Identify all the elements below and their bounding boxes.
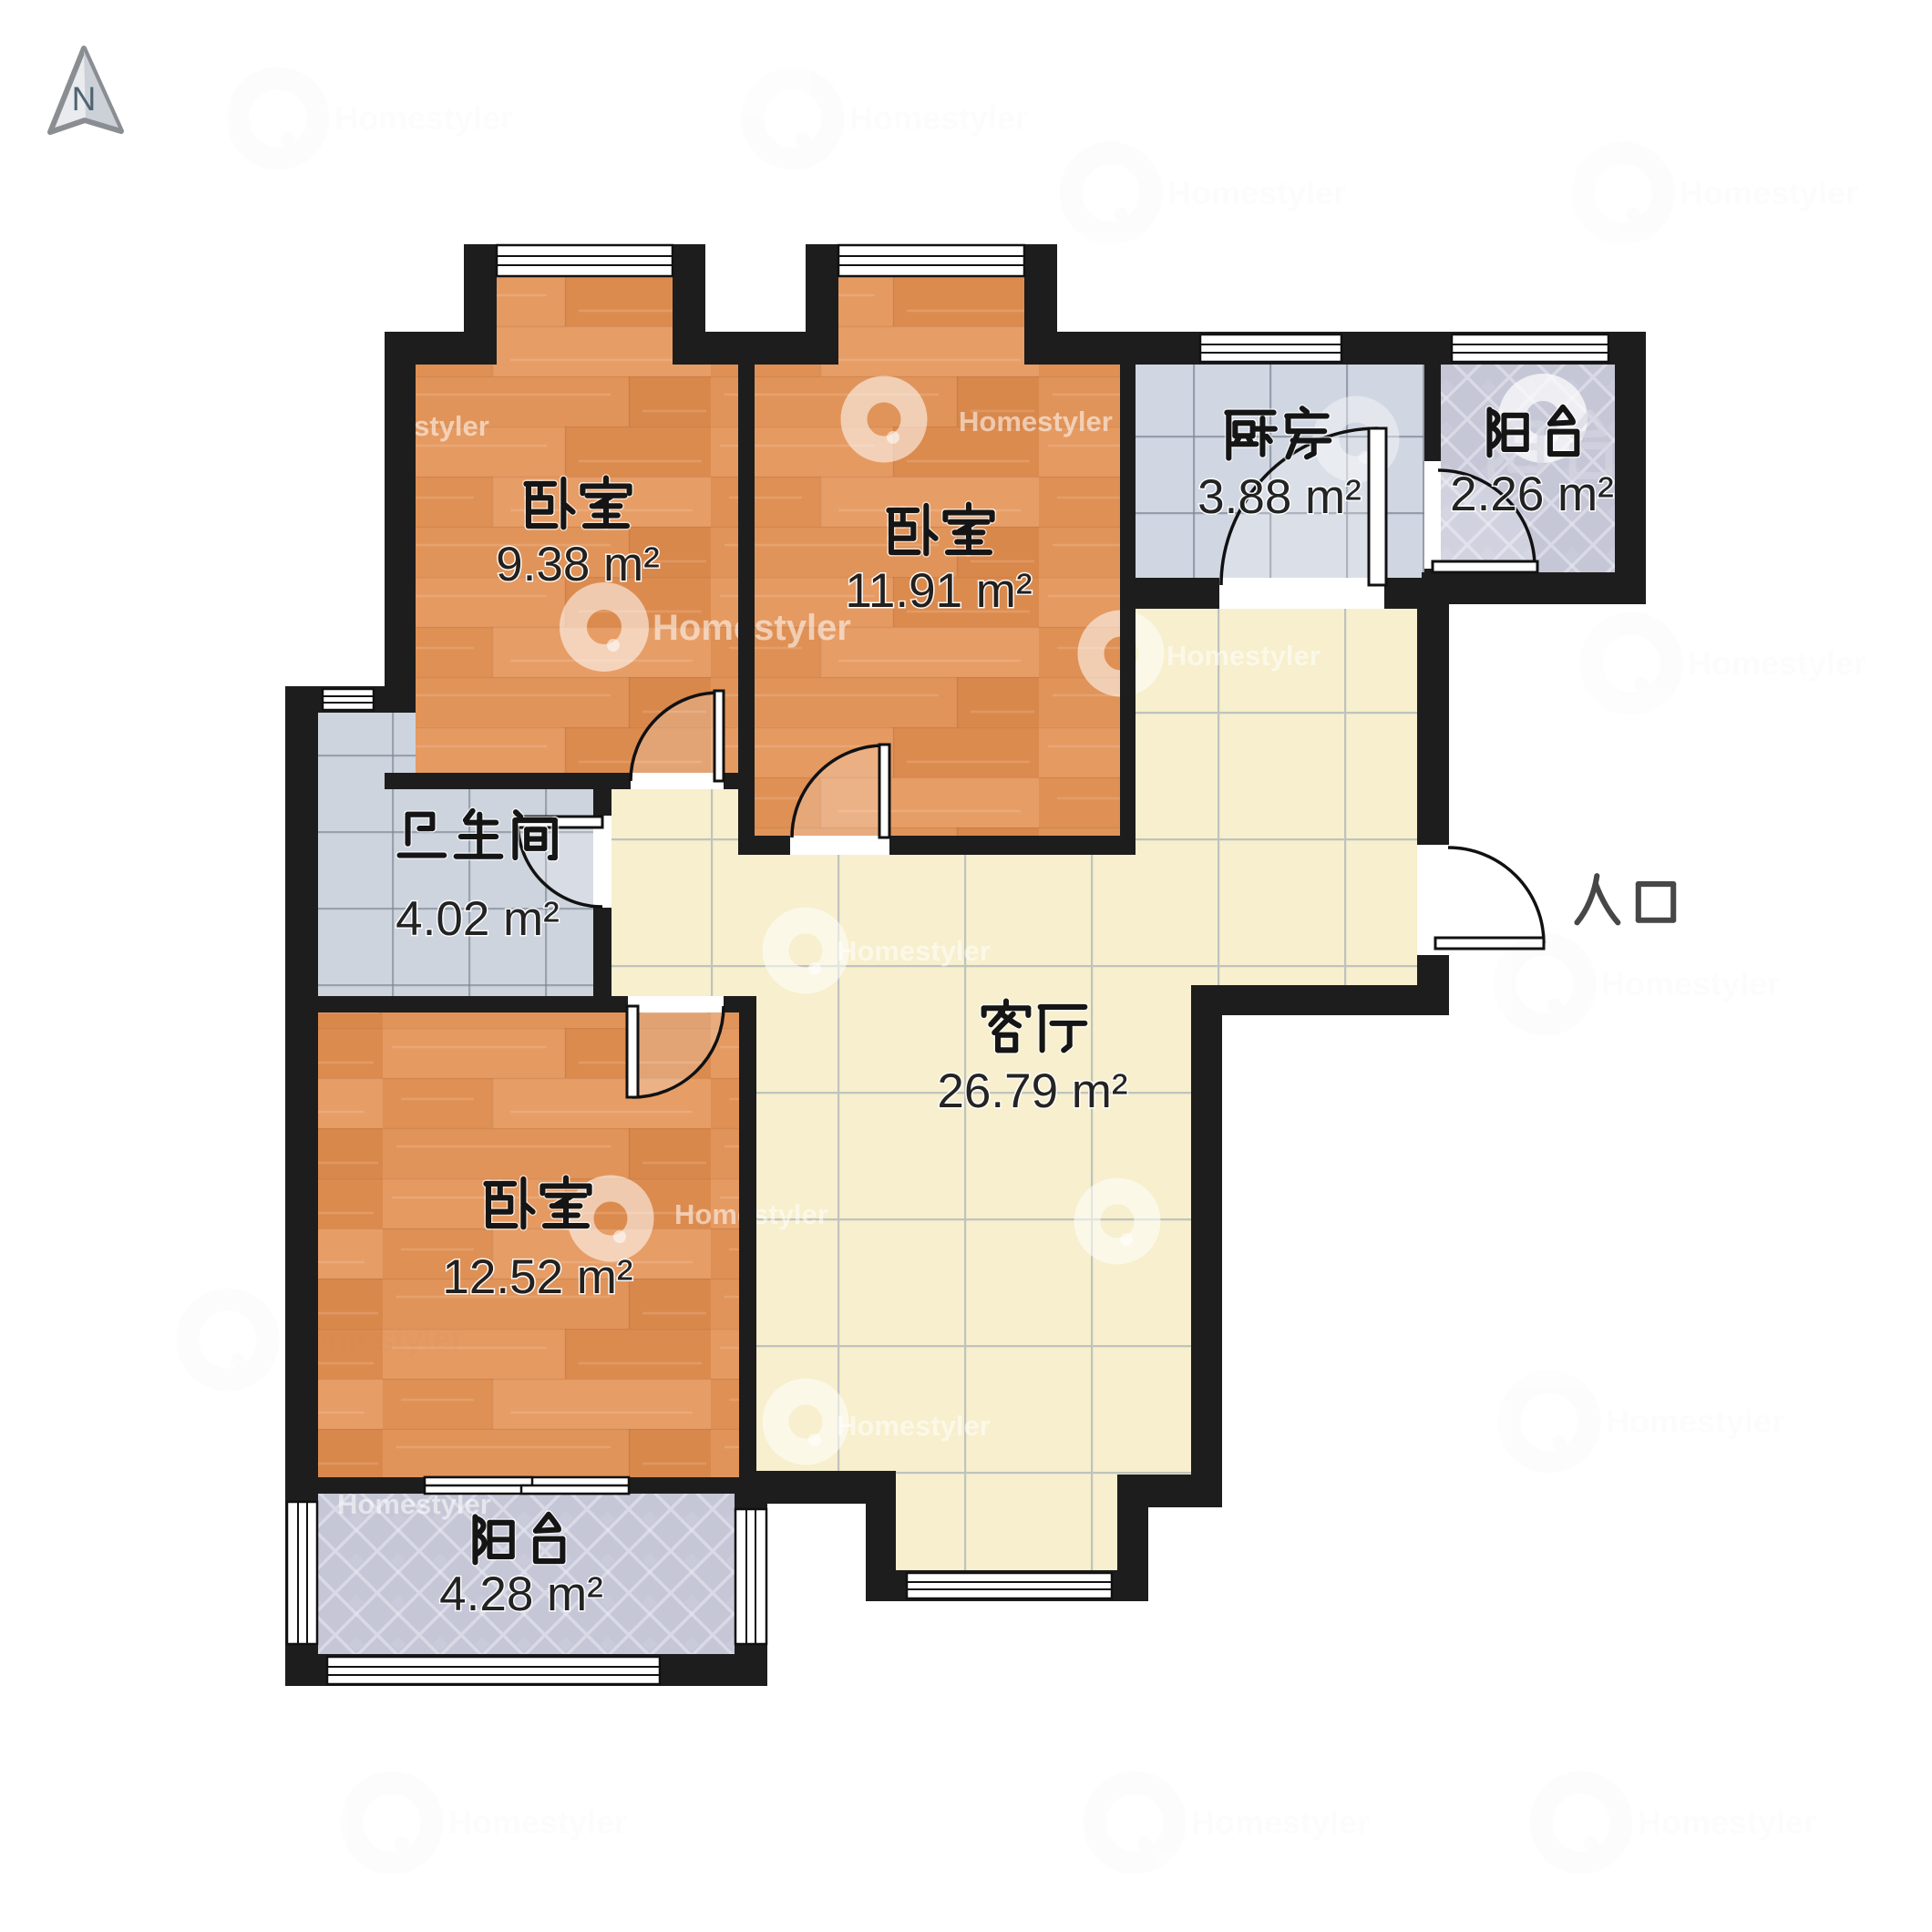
svg-text:11.91 m²: 11.91 m² [845,564,1032,618]
svg-text:Homestyler: Homestyler [837,1410,991,1442]
svg-text:4.02 m²: 4.02 m² [396,892,560,946]
svg-text:9.38 m²: 9.38 m² [496,538,660,591]
svg-text:Homestyler: Homestyler [284,1321,463,1358]
svg-text:2.26 m²: 2.26 m² [1450,468,1614,521]
svg-text:Homestyler: Homestyler [1606,1403,1784,1440]
svg-text:Homestyler: Homestyler [1638,1804,1816,1841]
svg-text:3.88 m²: 3.88 m² [1197,470,1362,524]
svg-text:Homestyler: Homestyler [837,935,991,967]
svg-text:12.52 m²: 12.52 m² [442,1250,632,1304]
svg-text:Homestyler: Homestyler [1166,640,1321,672]
svg-text:Homestyler: Homestyler [959,406,1113,437]
svg-text:Homestyler: Homestyler [1688,644,1866,682]
svg-text:Homestyler: Homestyler [1167,174,1346,211]
svg-text:Homestyler: Homestyler [849,99,1028,137]
svg-text:26.79 m²: 26.79 m² [937,1064,1127,1118]
svg-text:N: N [72,80,97,118]
svg-text:Homestyler: Homestyler [1680,174,1858,211]
svg-text:Homestyler: Homestyler [448,1804,627,1841]
svg-text:Homestyler: Homestyler [1601,965,1780,1002]
svg-text:Homestyler: Homestyler [334,99,513,137]
svg-text:Homestyler: Homestyler [1191,1804,1370,1841]
svg-text:4.28 m²: 4.28 m² [439,1567,603,1621]
